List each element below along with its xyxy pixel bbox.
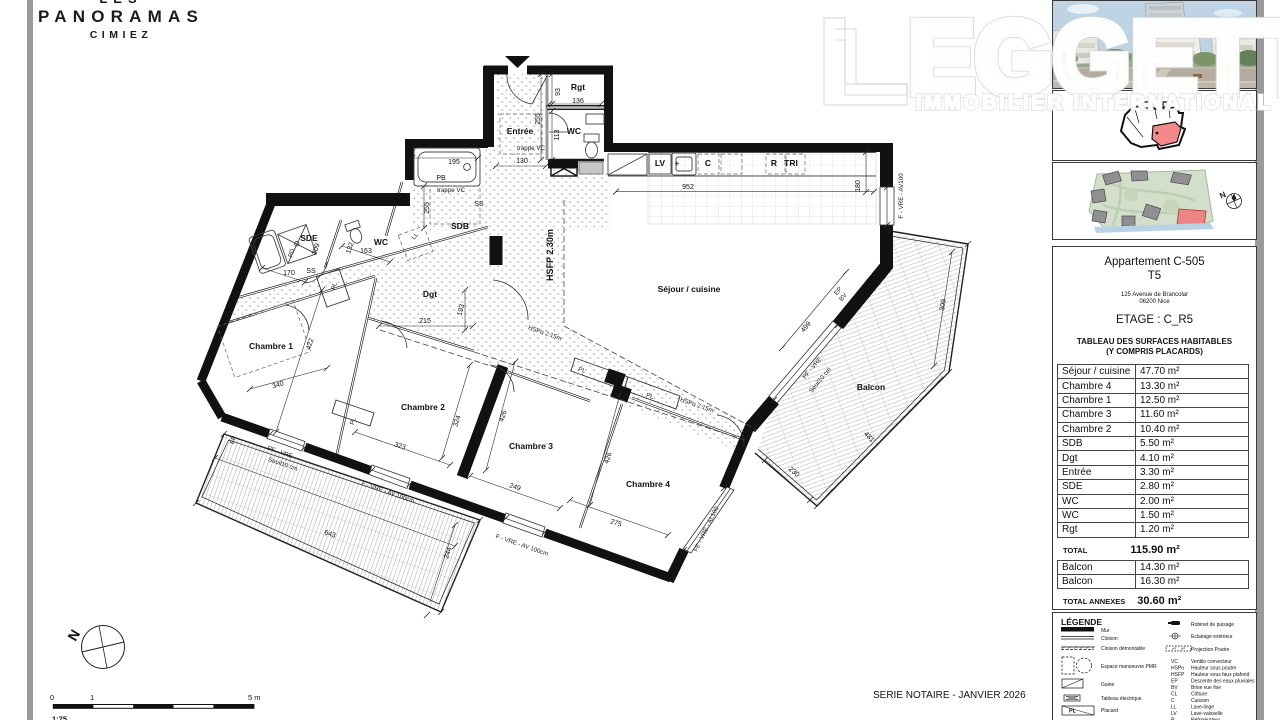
svg-text:PB: PB — [436, 175, 446, 182]
svg-text:LV: LV — [1171, 711, 1177, 717]
svg-text:Lave-linge: Lave-linge — [1191, 705, 1214, 711]
svg-text:1:75: 1:75 — [52, 715, 67, 720]
svg-text:499: 499 — [800, 321, 813, 335]
svg-text:Clôture: Clôture — [1191, 692, 1207, 698]
svg-text:170: 170 — [283, 270, 295, 277]
svg-text:Robinet de puisage: Robinet de puisage — [1191, 622, 1234, 628]
svg-text:F - VRE - AV100: F - VRE - AV100 — [898, 173, 905, 219]
svg-text:Chambre 2: Chambre 2 — [401, 402, 445, 412]
svg-text:Brise vue fixe: Brise vue fixe — [1191, 685, 1221, 691]
svg-text:Ventilo convecteur: Ventilo convecteur — [1191, 659, 1232, 665]
svg-text:163: 163 — [360, 248, 372, 255]
svg-text:422: 422 — [305, 337, 315, 350]
svg-text:WC: WC — [374, 237, 388, 247]
svg-text:trappe VC: trappe VC — [517, 145, 545, 152]
svg-text:Descente des eaux pluviales: Descente des eaux pluviales — [1191, 679, 1255, 685]
svg-text:249: 249 — [508, 482, 521, 492]
svg-text:PL: PL — [1069, 709, 1077, 715]
svg-text:C: C — [705, 158, 711, 168]
svg-text:WC: WC — [567, 126, 581, 136]
svg-text:PD: PD — [287, 248, 297, 259]
svg-text:130: 130 — [516, 158, 528, 165]
svg-text:Balcon: Balcon — [857, 382, 885, 392]
svg-text:Placard: Placard — [1101, 708, 1118, 714]
svg-text:LV: LV — [655, 158, 666, 168]
svg-text:CL: CL — [1171, 692, 1178, 698]
svg-text:HSFP 2.30m: HSFP 2.30m — [545, 229, 555, 281]
svg-text:Chambre 1: Chambre 1 — [249, 341, 293, 351]
svg-text:LL: LL — [410, 231, 420, 241]
svg-text:426: 426 — [498, 409, 508, 422]
svg-text:0: 0 — [50, 693, 54, 702]
svg-text:VC: VC — [1171, 659, 1178, 665]
svg-text:Tableau électrique: Tableau électrique — [1101, 696, 1142, 702]
svg-text:LÉGENDE: LÉGENDE — [1061, 617, 1102, 627]
svg-text:R: R — [771, 158, 777, 168]
svg-text:1: 1 — [90, 693, 94, 702]
svg-text:Chambre 3: Chambre 3 — [509, 441, 553, 451]
svg-text:PL: PL — [349, 416, 358, 426]
svg-text:BV: BV — [1171, 685, 1178, 691]
svg-text:Entrée: Entrée — [507, 126, 534, 136]
svg-text:93: 93 — [555, 88, 562, 96]
svg-text:195: 195 — [448, 159, 460, 166]
svg-text:Chambre 4: Chambre 4 — [626, 479, 670, 489]
svg-text:SERIE NOTAIRE - JANVIER 2026: SERIE NOTAIRE - JANVIER 2026 — [873, 690, 1026, 701]
svg-text:SDE: SDE — [300, 233, 318, 243]
svg-text:Gaine: Gaine — [1101, 682, 1115, 688]
svg-text:trappe VC: trappe VC — [437, 187, 465, 194]
svg-text:255: 255 — [424, 202, 431, 214]
svg-text:Cloison démontable: Cloison démontable — [1101, 646, 1145, 652]
svg-text:255: 255 — [535, 113, 542, 125]
svg-text:Espace manoeuvre PMR: Espace manoeuvre PMR — [1101, 664, 1157, 670]
svg-text:Séjour / cuisine: Séjour / cuisine — [658, 284, 721, 294]
svg-text:EP: EP — [1171, 679, 1178, 685]
svg-text:Lave-vaisselle: Lave-vaisselle — [1191, 711, 1223, 717]
svg-text:324: 324 — [452, 414, 462, 427]
svg-text:952: 952 — [682, 184, 694, 191]
svg-text:SS: SS — [474, 201, 484, 208]
svg-text:Cuisson: Cuisson — [1191, 698, 1209, 704]
svg-text:136: 136 — [572, 98, 584, 105]
svg-text:SS: SS — [306, 268, 316, 275]
svg-text:+: + — [675, 158, 680, 168]
svg-text:Mur: Mur — [1101, 628, 1110, 634]
svg-text:5 m: 5 m — [248, 693, 261, 702]
svg-text:Cloison: Cloison — [1101, 636, 1118, 642]
svg-text:Projection Poutre: Projection Poutre — [1191, 647, 1230, 653]
svg-text:HSFP: HSFP — [1171, 672, 1185, 678]
svg-text:C: C — [1171, 698, 1175, 704]
svg-text:132: 132 — [345, 241, 355, 254]
svg-text:Dgt: Dgt — [423, 289, 437, 299]
svg-text:Hauteur sous faux plafond: Hauteur sous faux plafond — [1191, 672, 1250, 678]
svg-text:113: 113 — [554, 129, 561, 140]
svg-text:HSPo: HSPo — [1171, 666, 1184, 672]
svg-text:180: 180 — [855, 180, 862, 192]
svg-text:LL: LL — [1171, 705, 1177, 711]
svg-text:Hauteur sous poutre: Hauteur sous poutre — [1191, 666, 1237, 672]
svg-text:SDB: SDB — [451, 221, 469, 231]
svg-text:275: 275 — [609, 518, 622, 528]
svg-text:323: 323 — [393, 441, 406, 451]
svg-text:Rgt: Rgt — [571, 82, 585, 92]
svg-text:215: 215 — [419, 318, 431, 325]
svg-text:Eclairage extérieur: Eclairage extérieur — [1191, 634, 1233, 640]
svg-text:340: 340 — [272, 380, 285, 390]
svg-text:N: N — [64, 627, 83, 644]
svg-text:TRI: TRI — [784, 158, 798, 168]
svg-text:N: N — [1218, 190, 1227, 201]
